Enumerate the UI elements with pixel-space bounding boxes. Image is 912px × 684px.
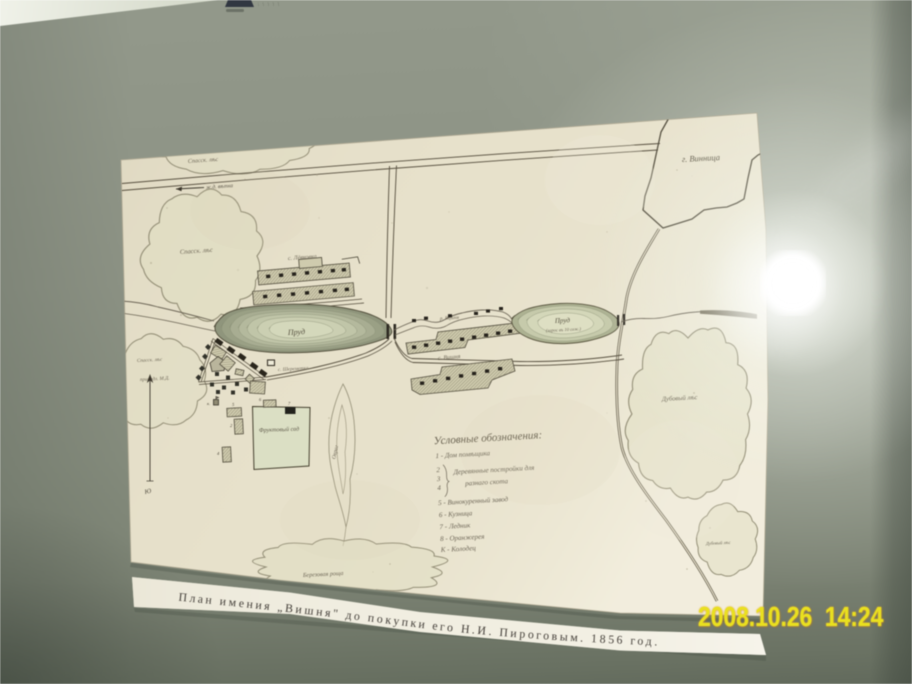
svg-text:Пруд: Пруд <box>287 327 306 337</box>
svg-text:Фруктовый сад: Фруктовый сад <box>259 426 299 434</box>
svg-text:к.: к. <box>207 401 210 406</box>
